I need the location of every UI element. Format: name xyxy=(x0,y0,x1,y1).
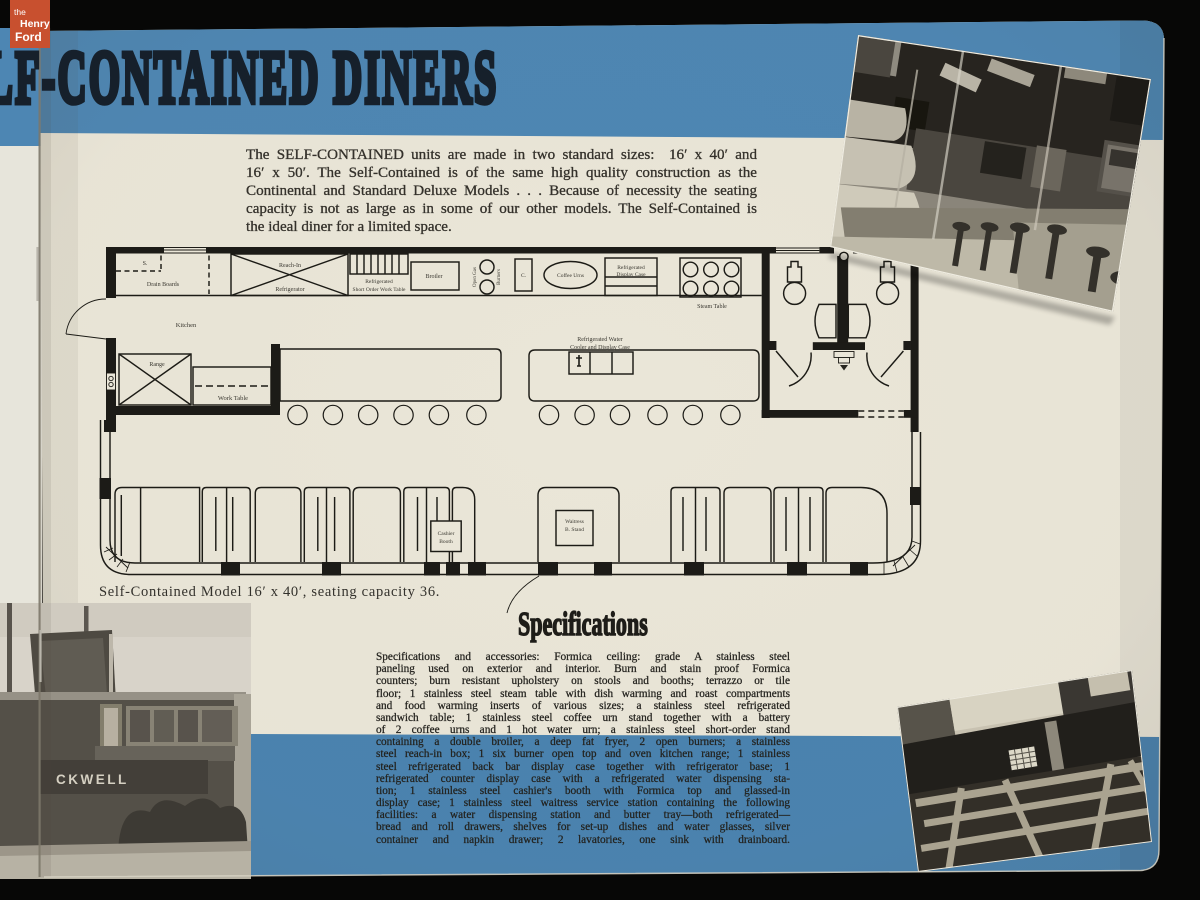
svg-text:Display Case: Display Case xyxy=(616,272,646,278)
svg-text:Cashier: Cashier xyxy=(438,531,455,537)
svg-text:Broiler: Broiler xyxy=(426,274,443,280)
svg-text:Reach-In: Reach-In xyxy=(279,263,301,269)
svg-text:Open Gas: Open Gas xyxy=(473,267,478,287)
svg-text:Work Table: Work Table xyxy=(218,395,248,402)
svg-text:Coffee Urns: Coffee Urns xyxy=(557,272,584,279)
svg-text:Henry: Henry xyxy=(20,18,50,30)
svg-text:Steam Table: Steam Table xyxy=(697,304,727,310)
svg-text:Short Order Work Table: Short Order Work Table xyxy=(353,287,406,293)
svg-text:Refrigerator: Refrigerator xyxy=(275,286,304,293)
svg-text:Drain Boards: Drain Boards xyxy=(147,282,180,288)
svg-text:Refrigerated Water: Refrigerated Water xyxy=(577,336,623,343)
svg-text:Booth: Booth xyxy=(439,539,453,545)
svg-text:Burners: Burners xyxy=(497,269,502,285)
svg-text:Kitchen: Kitchen xyxy=(176,322,197,329)
svg-text:B. Stand: B. Stand xyxy=(565,527,584,533)
svg-text:the: the xyxy=(14,7,26,17)
svg-text:Range: Range xyxy=(149,362,165,368)
svg-text:Refrigerated: Refrigerated xyxy=(617,264,645,271)
svg-text:Waitress: Waitress xyxy=(565,519,584,525)
svg-text:Refrigerated: Refrigerated xyxy=(365,278,393,285)
svg-text:S.: S. xyxy=(143,261,148,267)
svg-text:Cooler and Display Case: Cooler and Display Case xyxy=(570,345,630,351)
svg-text:C.: C. xyxy=(521,273,527,279)
